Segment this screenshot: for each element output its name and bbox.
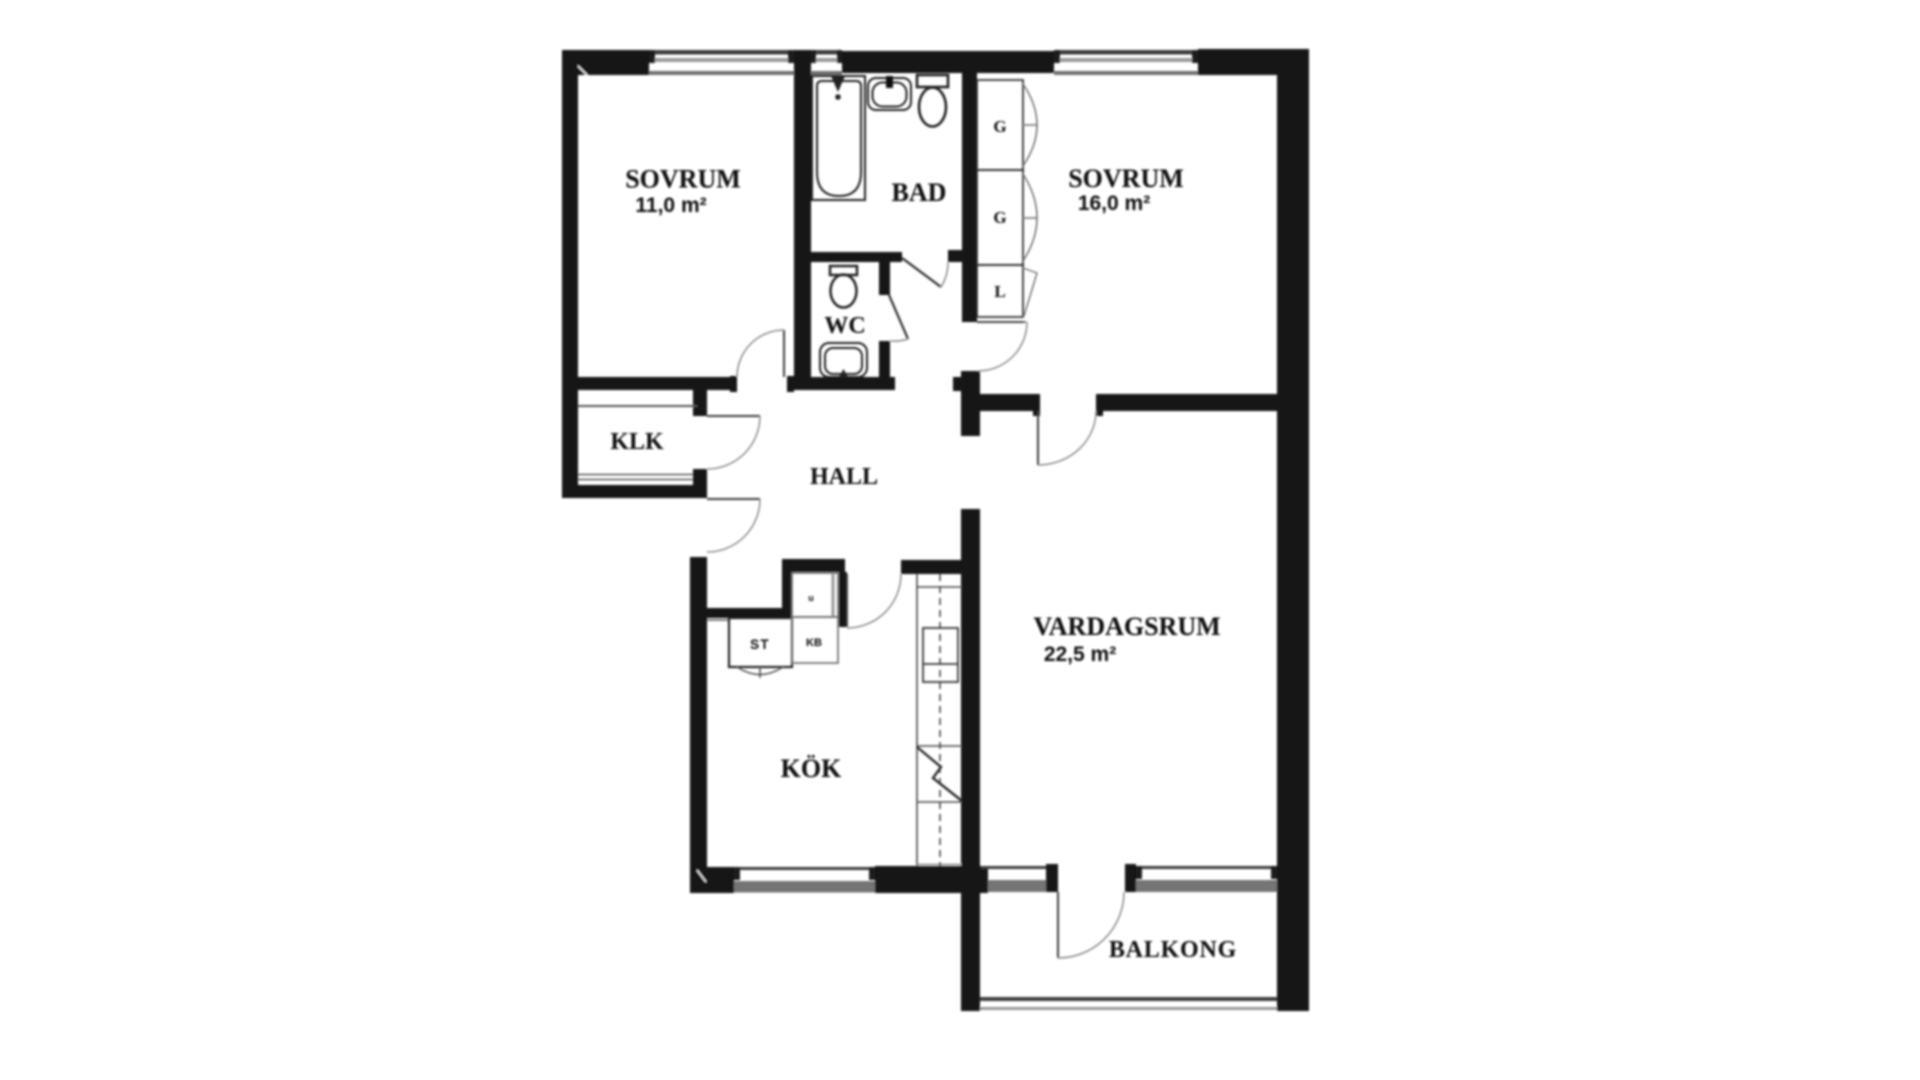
svg-text:ST: ST [750, 637, 770, 652]
svg-text:L: L [994, 282, 1005, 301]
svg-text:SOVRUM: SOVRUM [1068, 164, 1184, 193]
svg-text:BALKONG: BALKONG [1109, 937, 1237, 963]
svg-text:BAD: BAD [892, 178, 947, 207]
svg-text:16,0 m²: 16,0 m² [1078, 192, 1150, 215]
svg-text:G: G [993, 117, 1006, 136]
svg-text:VARDAGSRUM: VARDAGSRUM [1033, 612, 1220, 641]
svg-text:WC: WC [824, 313, 865, 339]
svg-text:G: G [993, 208, 1006, 227]
svg-text:KÖK: KÖK [781, 754, 842, 783]
svg-text:u: u [808, 593, 814, 603]
svg-text:HALL: HALL [810, 464, 878, 490]
svg-text:KLK: KLK [610, 429, 664, 455]
svg-text:22,5 m²: 22,5 m² [1044, 643, 1116, 666]
svg-text:KB: KB [806, 637, 822, 649]
svg-text:11,0 m²: 11,0 m² [635, 194, 706, 217]
svg-text:SOVRUM: SOVRUM [625, 165, 741, 194]
